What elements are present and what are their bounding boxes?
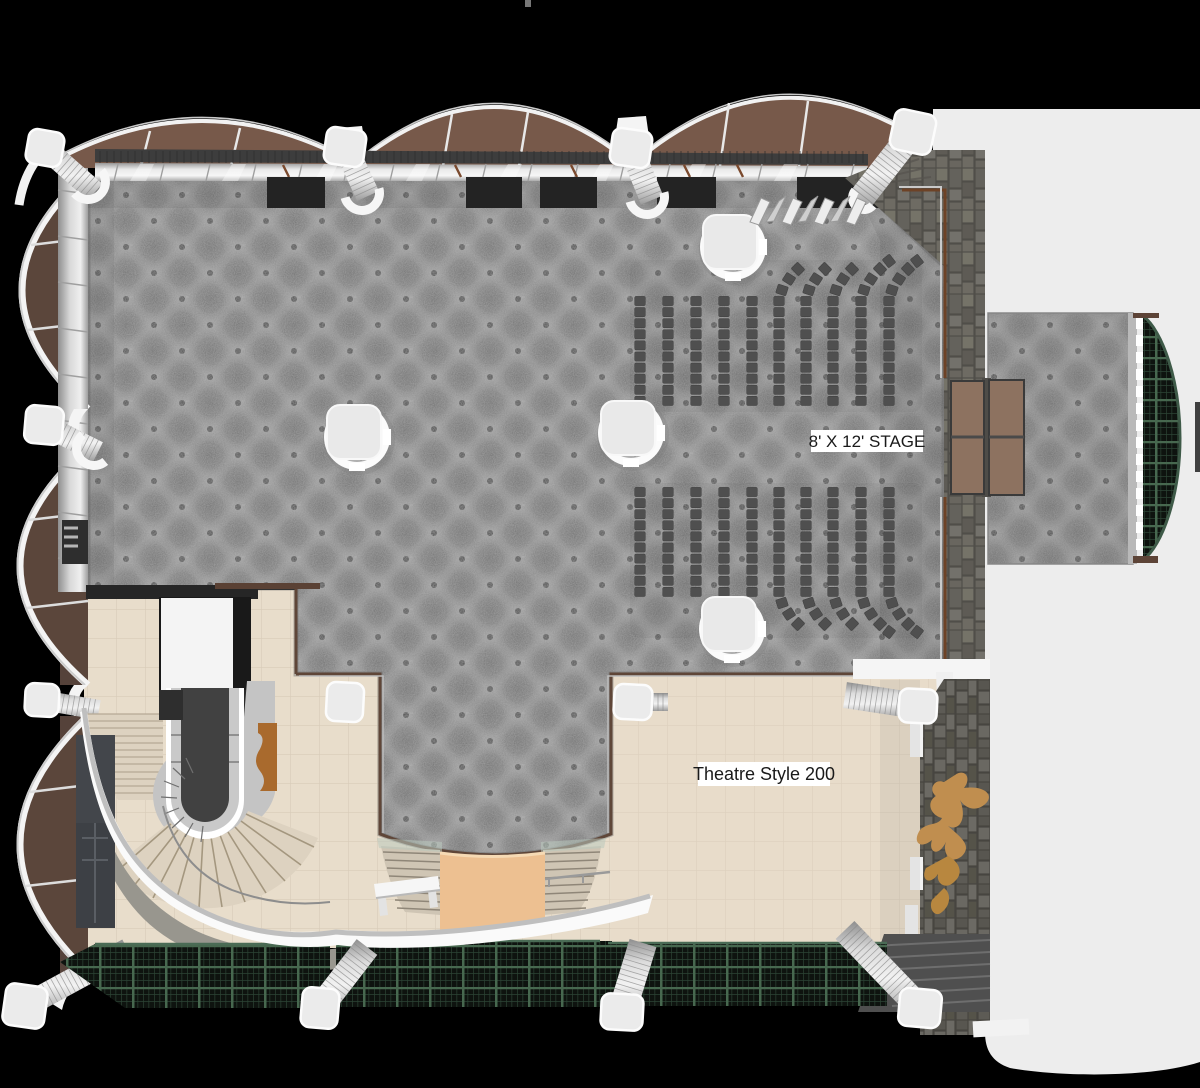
svg-text:8' X 12' STAGE: 8' X 12' STAGE xyxy=(809,432,926,451)
svg-text:Theatre Style 200: Theatre Style 200 xyxy=(693,764,835,784)
